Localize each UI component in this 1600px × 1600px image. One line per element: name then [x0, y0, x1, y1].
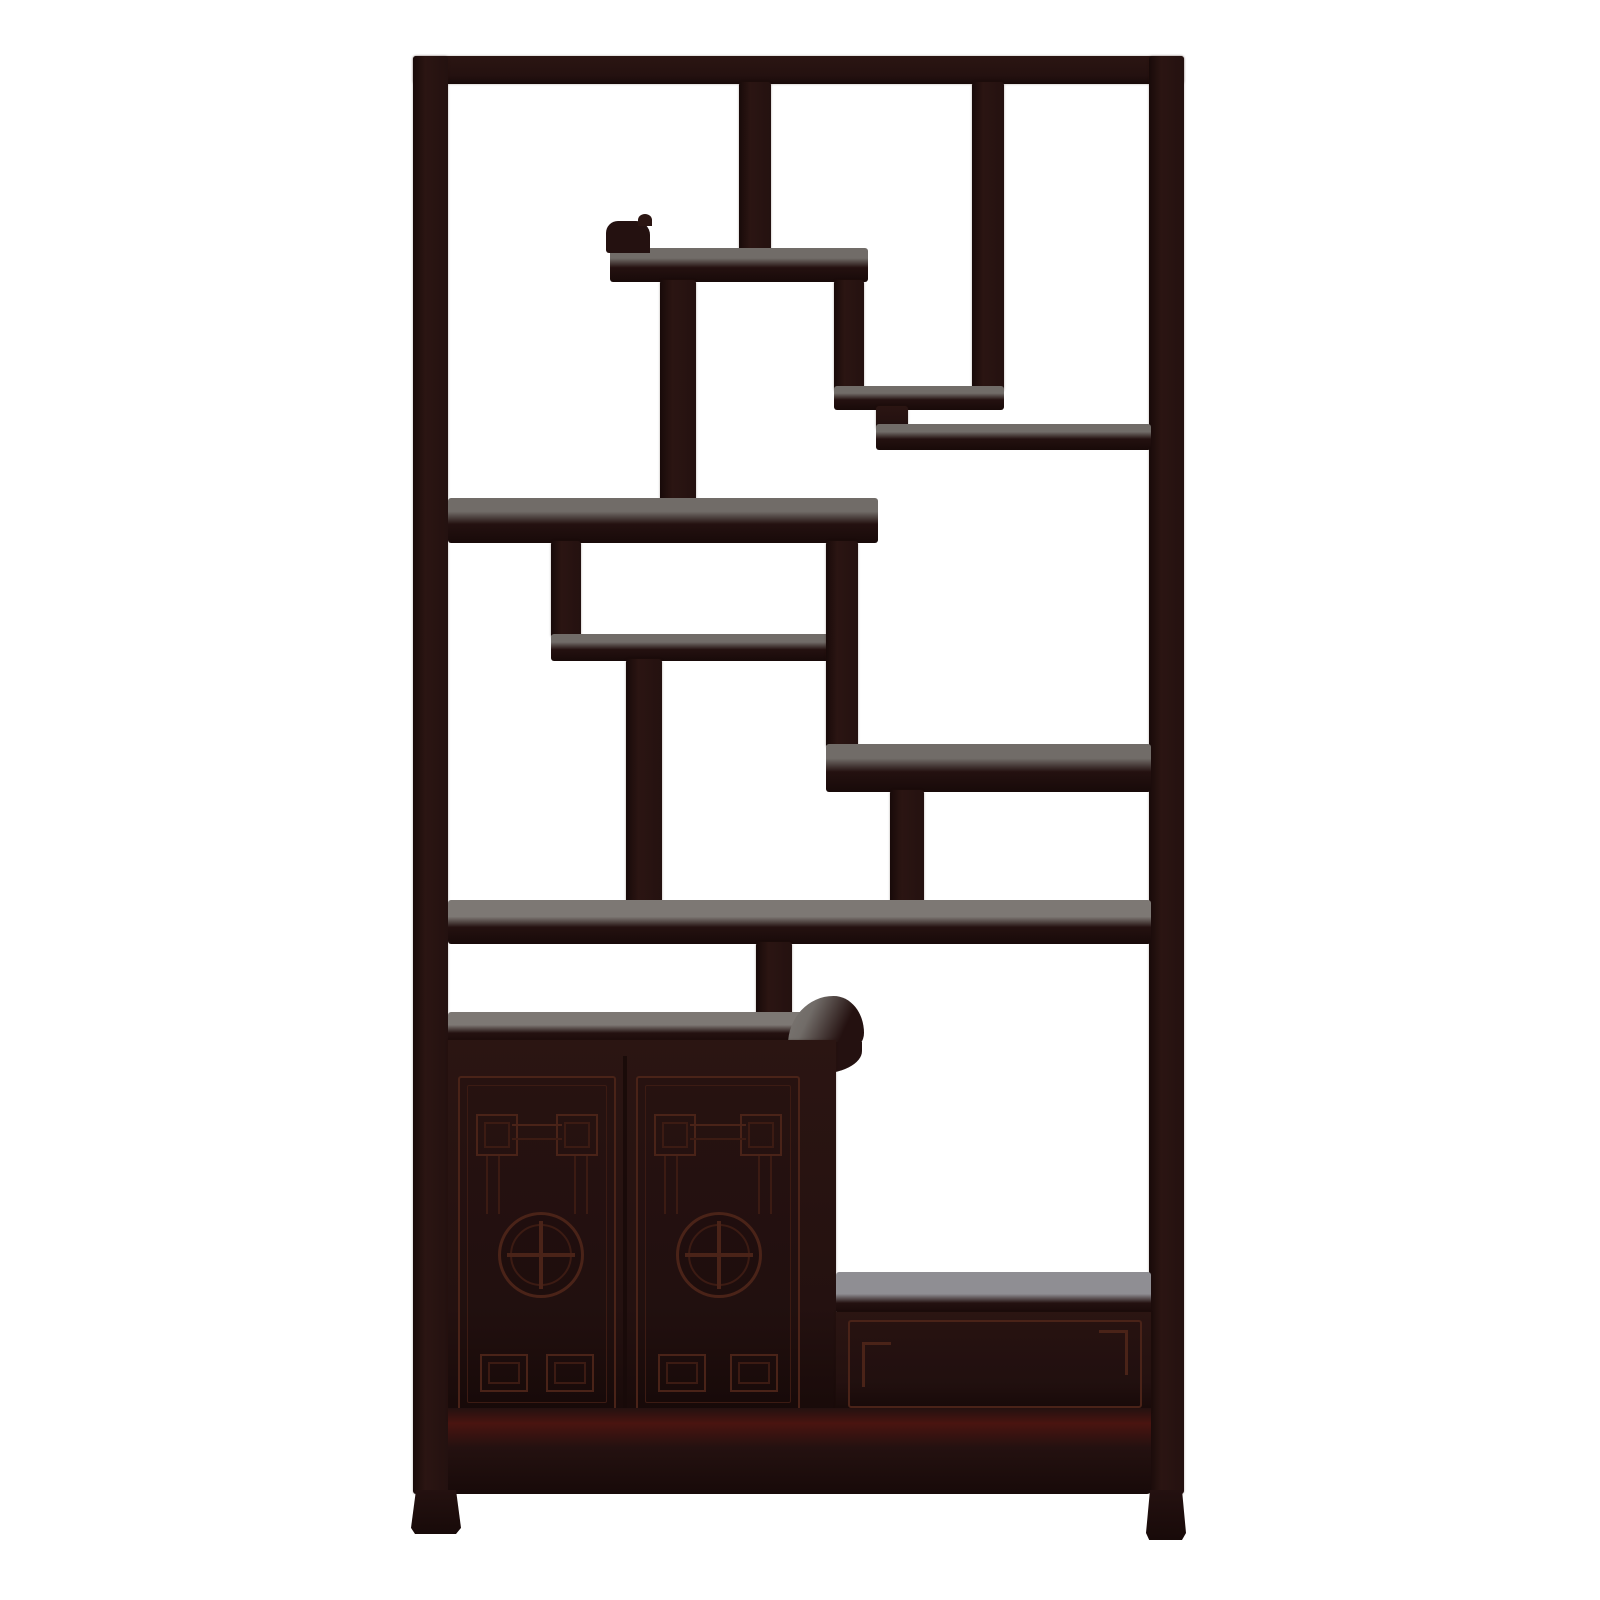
right-shelf-7 [826, 744, 1151, 792]
door-left-fret-rail [512, 1124, 562, 1140]
door-right-fret-rail [690, 1124, 746, 1140]
medallion-cross-vertical [717, 1221, 721, 1289]
step-shelf-2 [834, 386, 1004, 410]
scroll-shelf-1 [610, 248, 868, 282]
door-left-fret-drop-a [486, 1156, 500, 1214]
fret-inner [484, 1122, 510, 1148]
lattice-vertical-3 [551, 541, 581, 638]
fret-inner [748, 1122, 774, 1148]
lattice-vertical-4 [826, 541, 858, 748]
scroll-tip-nub [638, 214, 652, 226]
scroll-shelf-1-upturned-end [606, 221, 650, 253]
door-left-bottom-fret-a [480, 1354, 528, 1392]
drawer-corner-hook-left [862, 1342, 891, 1387]
medallion-cross-vertical [539, 1221, 543, 1289]
shou-medallion-left [498, 1212, 584, 1298]
wide-shelf-6 [448, 900, 1151, 944]
drawer-panel [848, 1320, 1142, 1408]
lattice-vertical-6 [890, 790, 924, 904]
fret-inner [488, 1362, 520, 1384]
door-left-bottom-fret-b [546, 1354, 594, 1392]
top-divider-right [972, 82, 1004, 392]
product-photo-stage [0, 0, 1600, 1600]
lattice-vertical-5 [626, 659, 662, 904]
top-divider-left [739, 82, 771, 252]
left-foot [411, 1490, 461, 1534]
drawer-top-shelf [836, 1272, 1151, 1314]
fret-inner [564, 1122, 590, 1148]
shelf-top-rail [413, 56, 1184, 84]
right-foot [1146, 1490, 1186, 1540]
door-meeting-gap [623, 1056, 627, 1408]
mid-shelf-4 [448, 498, 878, 543]
door-right-fret-corner-b [740, 1114, 782, 1156]
fret-inner [666, 1362, 698, 1384]
fret-inner [662, 1122, 688, 1148]
cabinet-top-connector [756, 942, 792, 1016]
shou-medallion-right [676, 1212, 762, 1298]
door-right-bottom-fret-a [658, 1354, 706, 1392]
door-left-fret-corner-b [556, 1114, 598, 1156]
door-right-fret-drop-a [664, 1156, 678, 1214]
mid-shelf-5 [551, 634, 858, 661]
door-right-bottom-fret-b [730, 1354, 778, 1392]
shelf-right-post [1149, 56, 1184, 1494]
drawer-corner-hook-right [1099, 1330, 1128, 1375]
bottom-apron [448, 1408, 1151, 1494]
lattice-vertical-1 [834, 280, 864, 392]
fret-inner [738, 1362, 770, 1384]
long-shelf-3 [876, 424, 1151, 450]
lattice-vertical-2 [660, 280, 696, 502]
fret-inner [554, 1362, 586, 1384]
door-left-fret-drop-b [574, 1156, 588, 1214]
door-right-fret-drop-b [758, 1156, 772, 1214]
shelf-left-post [413, 56, 448, 1494]
